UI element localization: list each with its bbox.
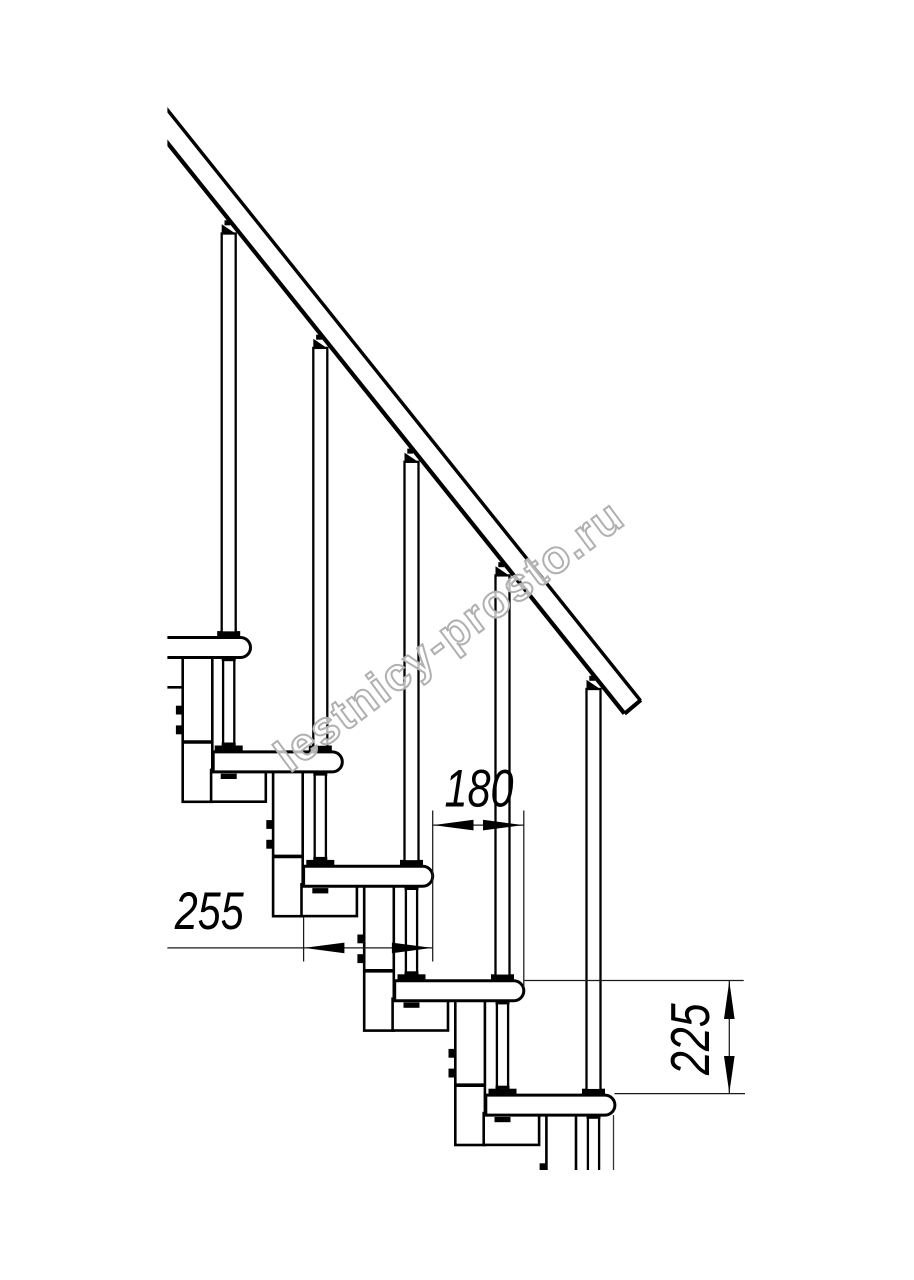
svg-text:180: 180: [445, 760, 514, 819]
svg-text:255: 255: [174, 882, 244, 941]
svg-text:225: 225: [659, 1003, 721, 1076]
